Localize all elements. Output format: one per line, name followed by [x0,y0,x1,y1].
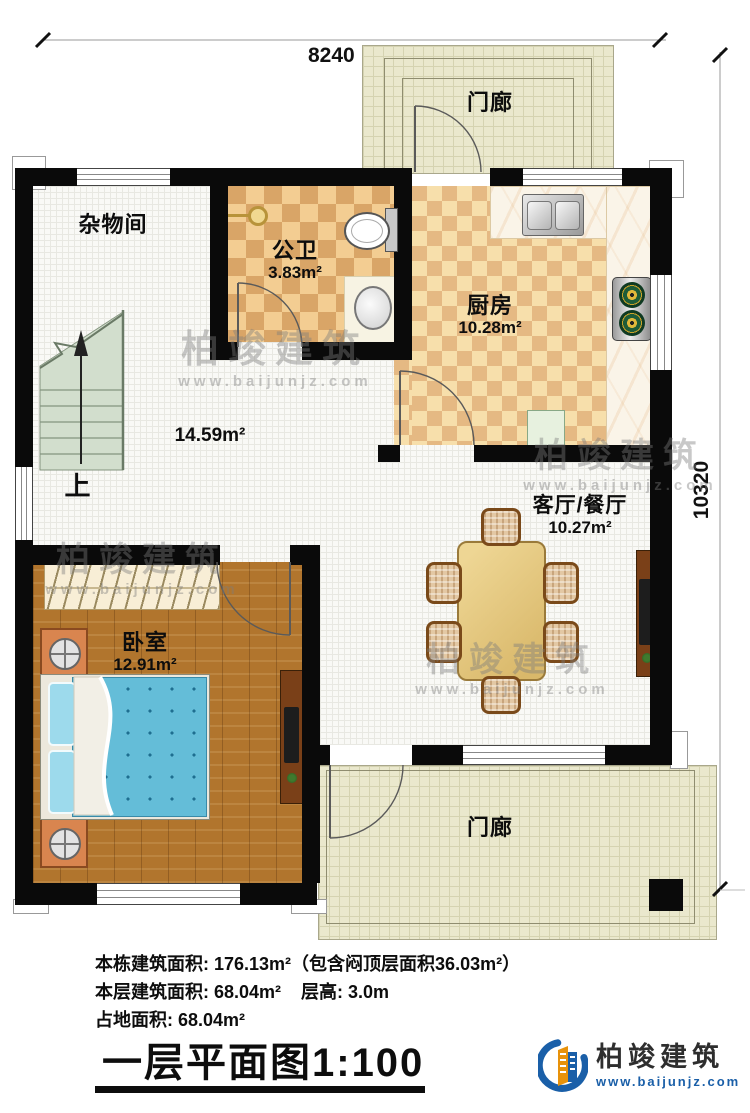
room-label-porch-top: 门廊 [450,90,530,115]
staircase [40,310,123,470]
stairs-up-label: 上 [58,472,98,502]
room-name: 杂物间 [78,212,147,237]
plan-linework [0,0,750,1113]
room-label-bedroom: 卧室 12.91m² [95,630,195,676]
door-arc [217,562,290,635]
door-arc [400,371,474,445]
dimension-lines [36,33,745,896]
room-area: 3.83m² [268,263,322,282]
building-info-line-3: 占地面积: 68.04m² [95,1006,245,1032]
room-label-porch-bottom: 门廊 [450,815,530,840]
room-label-storage: 杂物间 [58,212,168,237]
room-area: 14.59m² [175,425,246,446]
stairs-up-text: 上 [64,471,91,501]
room-area: 10.27m² [548,518,611,537]
building-info-line-1: 本栋建筑面积: 176.13m²（包含闷顶层面积36.03m²） [95,950,520,976]
room-area: 10.28m² [458,318,521,337]
door-swings [217,106,481,838]
brand-url: www.baijunjz.com [596,1074,740,1089]
bed-sheet-fold [74,677,112,815]
room-name: 公卫 [272,238,318,263]
room-label-kitchen: 厨房 10.28m² [430,293,550,339]
room-name: 卧室 [122,630,168,655]
room-label-bathroom: 公卫 3.83m² [250,238,340,284]
floor-plan-canvas: 门廊 杂物间 公卫 3.83m² 厨房 10.28m² 14.59m² 上 客厅… [0,0,750,1113]
room-name: 客厅/餐厅 [533,494,628,517]
dimension-width: 8240 [308,44,355,68]
door-arc [238,283,302,347]
dimension-height: 10320 [690,445,714,535]
room-area: 12.91m² [113,655,176,674]
brand-name: 柏竣建筑 [596,1043,740,1073]
room-name: 门廊 [467,90,513,115]
door-arc [330,765,403,838]
title-underline [95,1086,425,1093]
door-arc [415,106,481,172]
brand-logo: 柏竣建筑 www.baijunjz.com [538,1038,740,1094]
building-info-line-2: 本层建筑面积: 68.04m² 层高: 3.0m [95,978,389,1004]
brand-logo-mark-icon [538,1038,588,1094]
room-name: 厨房 [467,293,513,318]
room-name: 门廊 [467,815,513,840]
room-label-living: 客厅/餐厅 10.27m² [505,494,655,539]
hall-area-label: 14.59m² [160,425,260,447]
plan-title: 一层平面图1:100 [102,1030,424,1088]
